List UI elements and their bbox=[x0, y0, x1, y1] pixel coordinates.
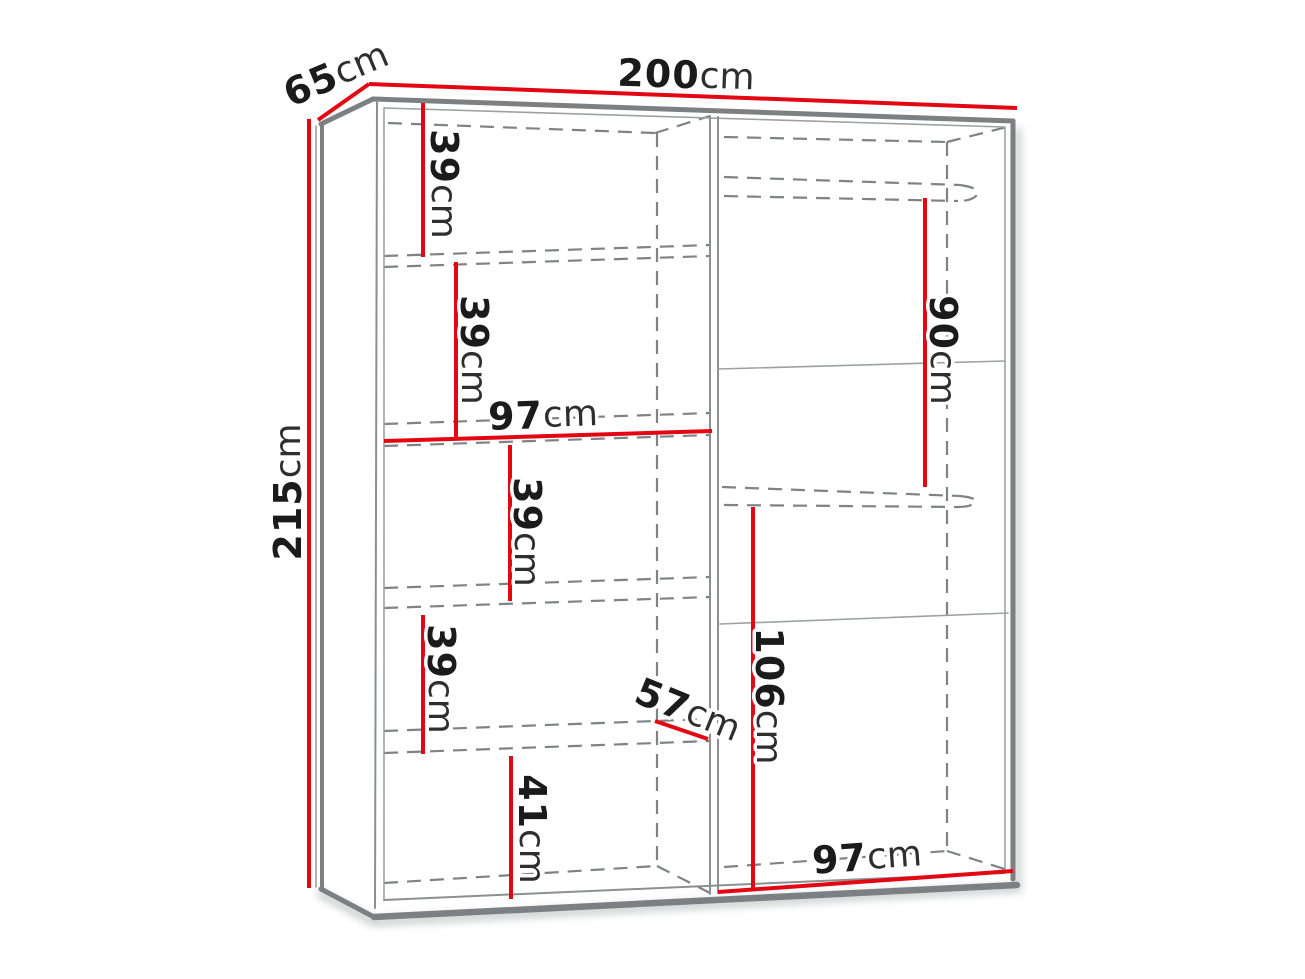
hanging-rail-1-top bbox=[724, 177, 960, 185]
divider-back-top-diagonal bbox=[655, 116, 710, 133]
dimension-labels: 65cm 200cm 215cm 39cm 39cm 97cm 39cm 39c… bbox=[266, 32, 965, 884]
hidden-edges bbox=[384, 116, 1011, 894]
cabinet-shadow bbox=[321, 130, 1018, 922]
floor-corner-diagonal-right bbox=[947, 851, 1011, 871]
back-top-corner-diagonal bbox=[947, 127, 1007, 142]
shelf-1-bottom-edge bbox=[384, 256, 710, 267]
dim-label-height-215: 215cm bbox=[266, 423, 310, 560]
floor-corner-diagonal-left bbox=[657, 866, 712, 894]
diagram-canvas: 65cm 200cm 215cm 39cm 39cm 97cm 39cm 39c… bbox=[0, 0, 1305, 979]
dim-label-shelf-gap-3: 39cm bbox=[505, 477, 549, 587]
wardrobe-dimension-diagram: 65cm 200cm 215cm 39cm 39cm 97cm 39cm 39c… bbox=[0, 0, 1305, 979]
dim-label-width-200: 200cm bbox=[617, 51, 756, 100]
hanging-rail-1-bottom bbox=[724, 196, 958, 201]
back-top-edge-right bbox=[724, 137, 947, 142]
dim-label-shelf-gap-1: 39cm bbox=[422, 129, 466, 239]
right-section-shelf-line-lower bbox=[720, 613, 1008, 624]
shelf-4-bottom-edge bbox=[384, 741, 710, 753]
hanging-rail-1-end-cap bbox=[958, 185, 978, 201]
dim-label-hanging-90: 90cm bbox=[921, 295, 965, 405]
front-left-edge bbox=[375, 101, 377, 908]
plinth-bottom-edge bbox=[374, 885, 1017, 917]
hanging-rail-2-bottom bbox=[724, 505, 958, 507]
dimension-lines bbox=[309, 84, 1017, 899]
dim-label-right-width-97: 97cm bbox=[811, 831, 924, 883]
dim-label-shelf-gap-2: 39cm bbox=[452, 295, 496, 405]
shelf-3-bottom-edge bbox=[384, 597, 710, 608]
hanging-rail-2-top bbox=[722, 487, 960, 496]
dim-label-left-width-97: 97cm bbox=[487, 391, 598, 439]
dim-label-shelf-gap-4: 39cm bbox=[419, 624, 463, 734]
dim-label-hanging-106: 106cm bbox=[747, 627, 791, 764]
shelf-1-top-edge bbox=[384, 245, 710, 256]
dim-label-depth-57: 57cm bbox=[629, 669, 747, 751]
dim-label-shelf-gap-5: 41cm bbox=[510, 774, 554, 884]
hanging-rail-2-end-cap bbox=[958, 496, 976, 507]
